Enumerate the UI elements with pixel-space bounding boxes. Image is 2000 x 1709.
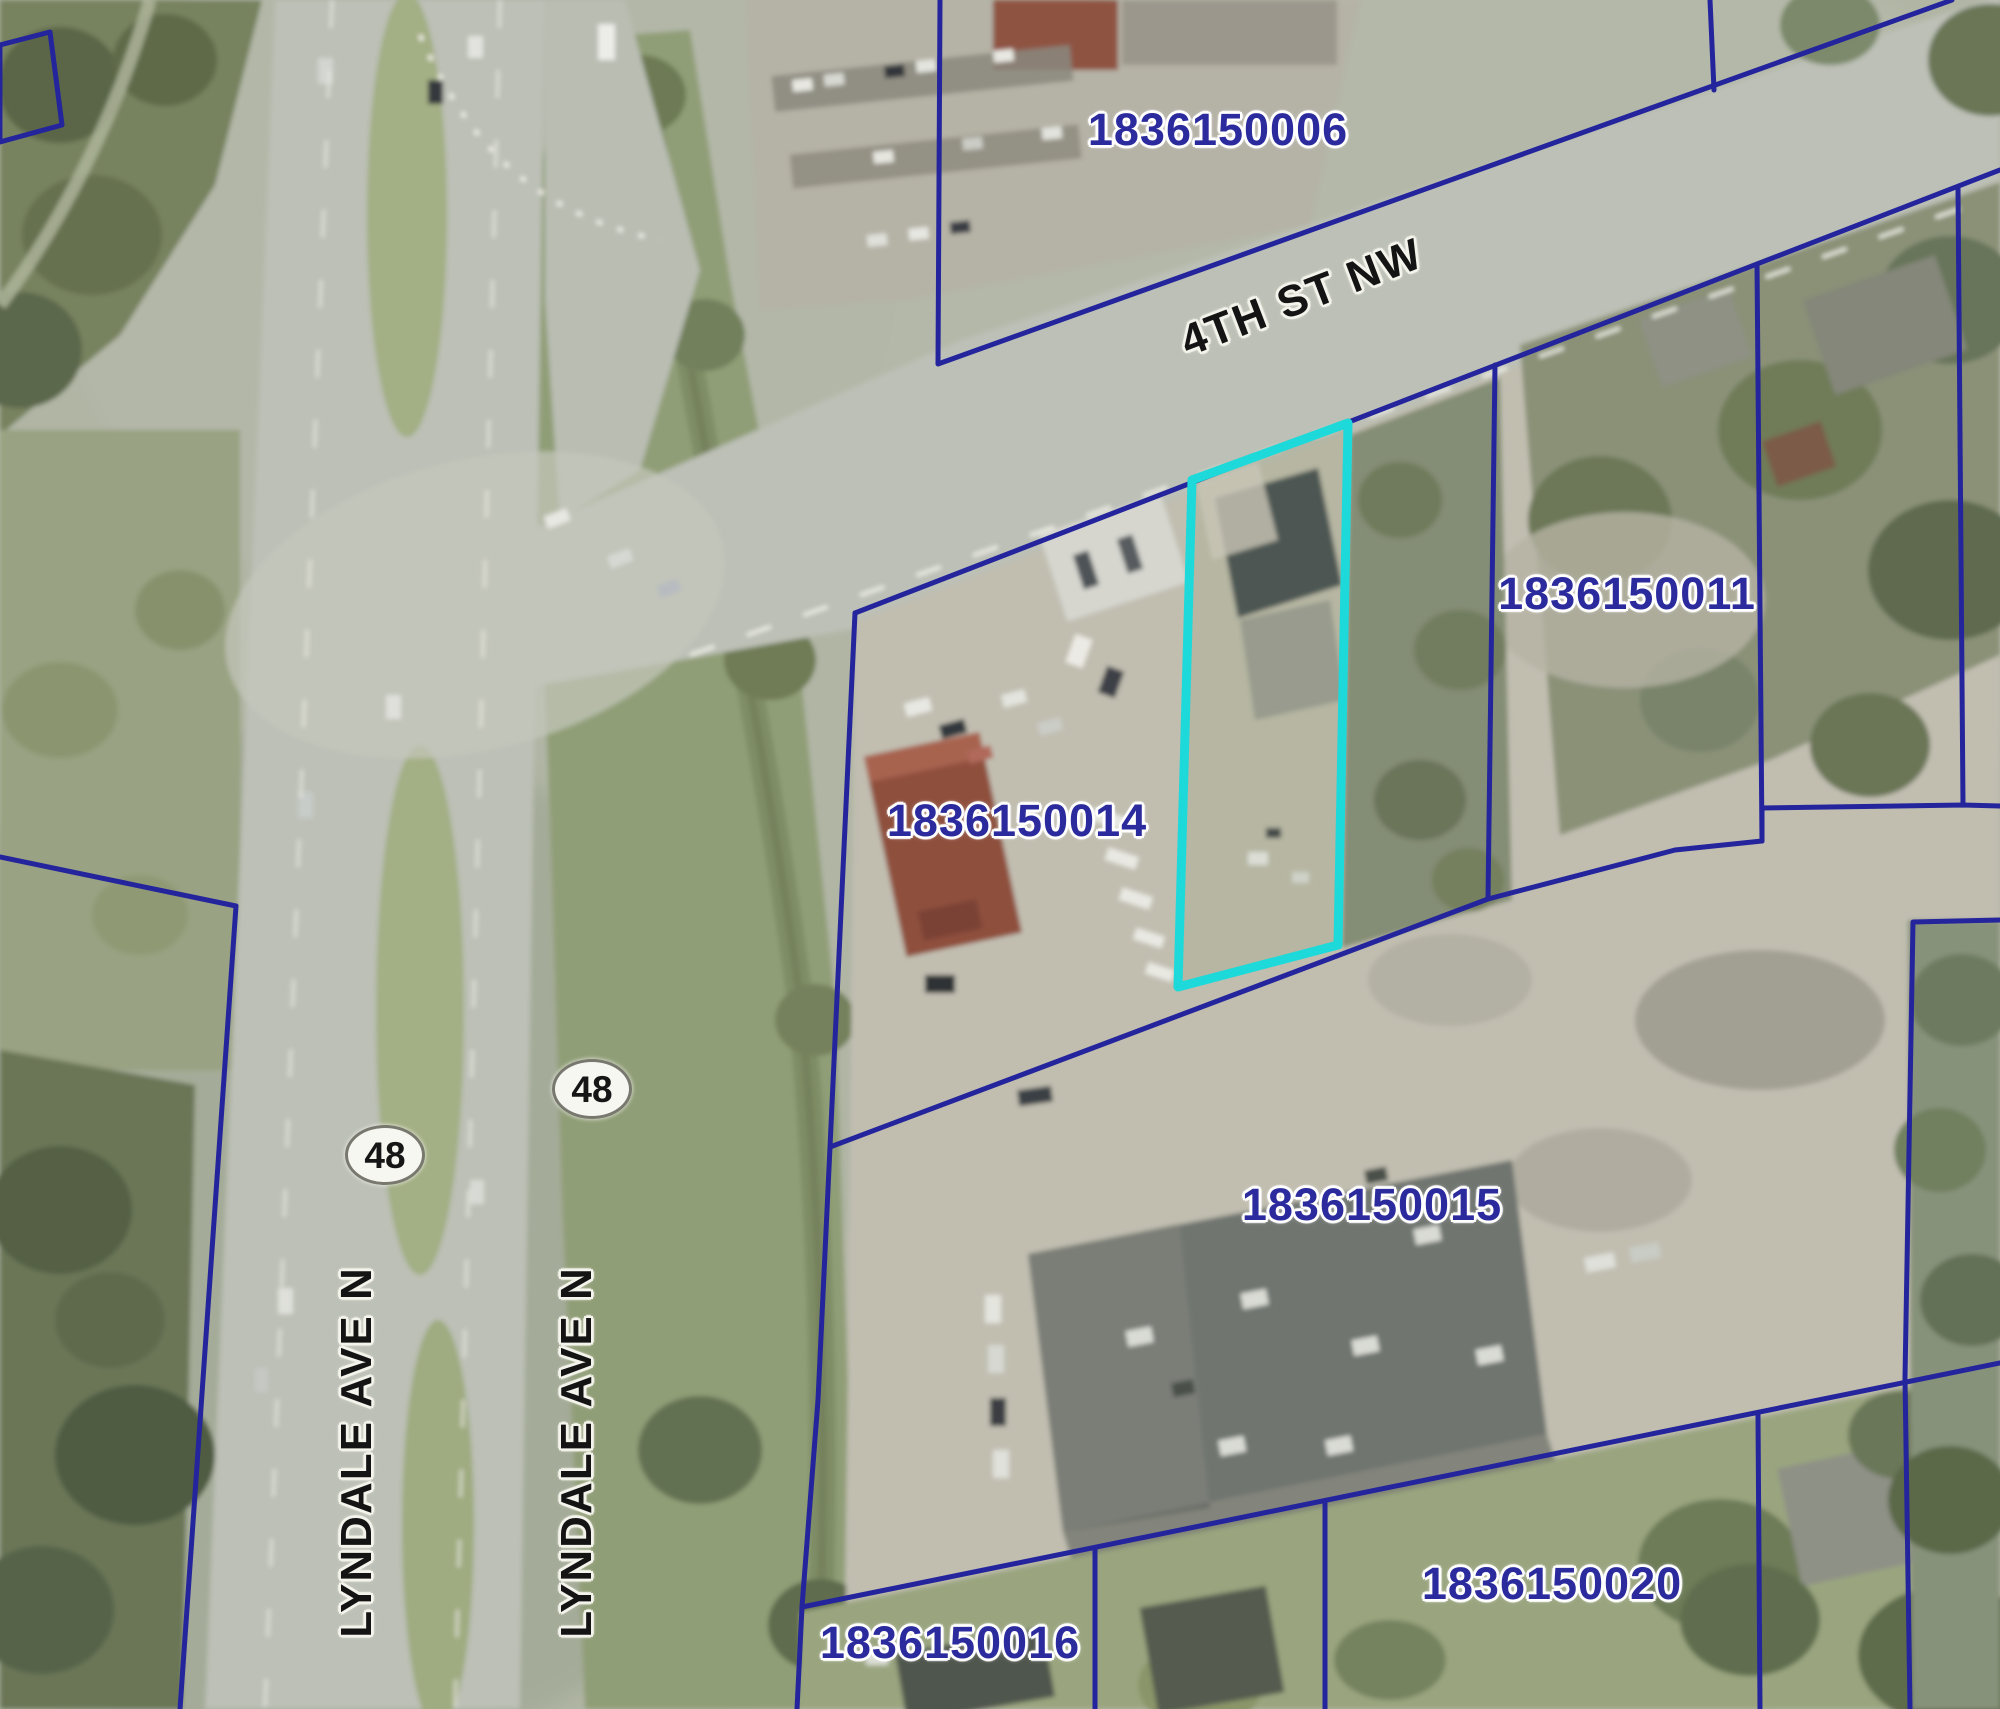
map-viewport[interactable]: 1836150006 1836150011 1836150014 1836150… [0, 0, 2000, 1709]
aerial-photo-layer [0, 0, 2000, 1709]
route-48-number: 48 [364, 1137, 405, 1174]
route-48-number: 48 [571, 1071, 612, 1108]
route-48-shield: 48 [552, 1059, 632, 1119]
aerial-basemap [0, 0, 2000, 1709]
route-48-shield: 48 [345, 1125, 425, 1185]
outbuilding-roof [1140, 1586, 1285, 1709]
